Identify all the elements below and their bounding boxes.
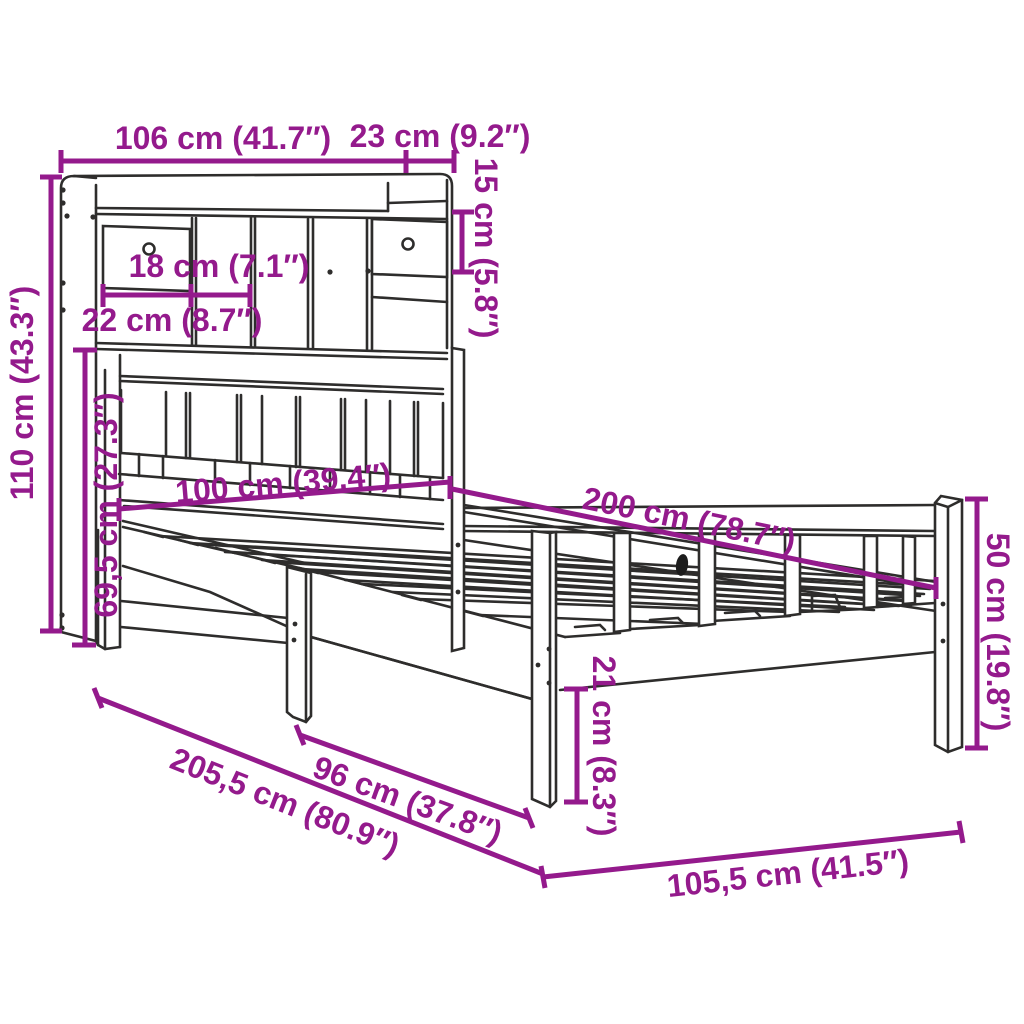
- svg-text:50 cm (19.8″): 50 cm (19.8″): [980, 533, 1016, 732]
- svg-text:18 cm (7.1″): 18 cm (7.1″): [129, 248, 310, 284]
- svg-text:22 cm (8.7″): 22 cm (8.7″): [82, 302, 263, 338]
- svg-text:21 cm (8.3″): 21 cm (8.3″): [586, 656, 622, 837]
- svg-text:15 cm (5.8″): 15 cm (5.8″): [468, 158, 504, 339]
- svg-text:110 cm (43.3″): 110 cm (43.3″): [4, 286, 40, 501]
- svg-text:23 cm (9.2″): 23 cm (9.2″): [350, 118, 531, 154]
- svg-text:106 cm (41.7″): 106 cm (41.7″): [115, 120, 331, 156]
